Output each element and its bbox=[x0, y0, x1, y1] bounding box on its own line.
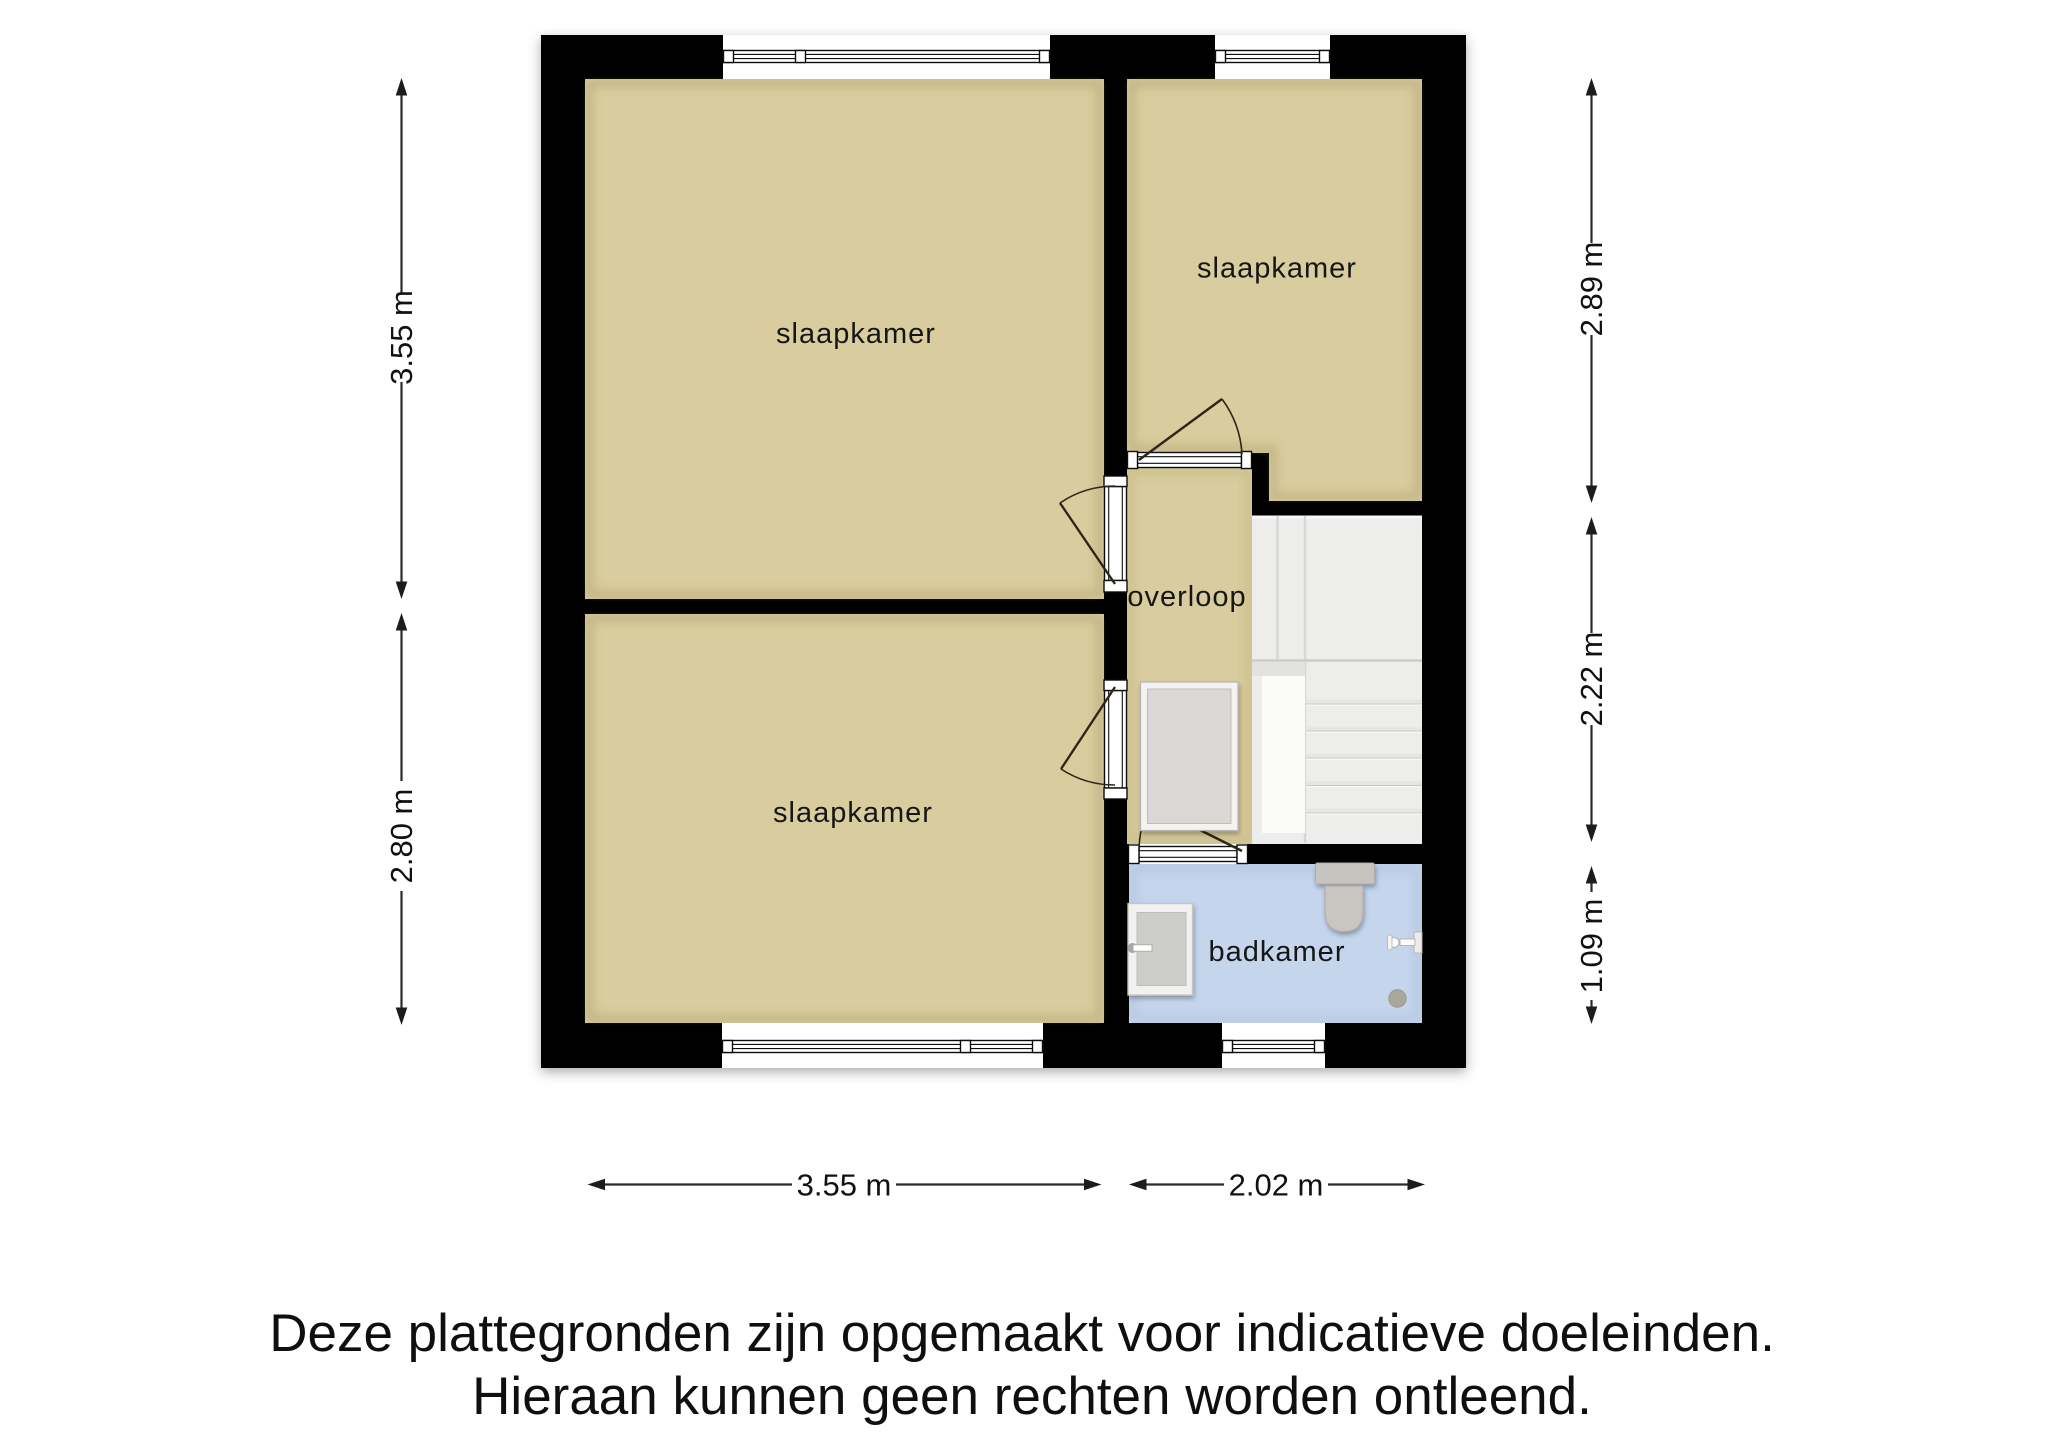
svg-text:3.55 m: 3.55 m bbox=[797, 1168, 892, 1203]
svg-text:badkamer: badkamer bbox=[1209, 936, 1346, 968]
svg-text:2.02 m: 2.02 m bbox=[1229, 1168, 1324, 1203]
svg-text:overloop: overloop bbox=[1127, 581, 1246, 613]
svg-text:1.09 m: 1.09 m bbox=[1574, 899, 1609, 994]
svg-text:3.55 m: 3.55 m bbox=[384, 290, 419, 385]
svg-text:2.22 m: 2.22 m bbox=[1574, 632, 1609, 727]
svg-text:2.80 m: 2.80 m bbox=[384, 789, 419, 884]
svg-text:Hieraan kunnen geen rechten wo: Hieraan kunnen geen rechten worden ontle… bbox=[472, 1367, 1592, 1426]
svg-text:slaapkamer: slaapkamer bbox=[776, 318, 936, 350]
svg-text:slaapkamer: slaapkamer bbox=[1197, 253, 1357, 285]
svg-text:2.89 m: 2.89 m bbox=[1574, 242, 1609, 337]
svg-text:slaapkamer: slaapkamer bbox=[773, 797, 933, 829]
svg-text:Deze plattegronden zijn opgema: Deze plattegronden zijn opgemaakt voor i… bbox=[269, 1304, 1775, 1363]
